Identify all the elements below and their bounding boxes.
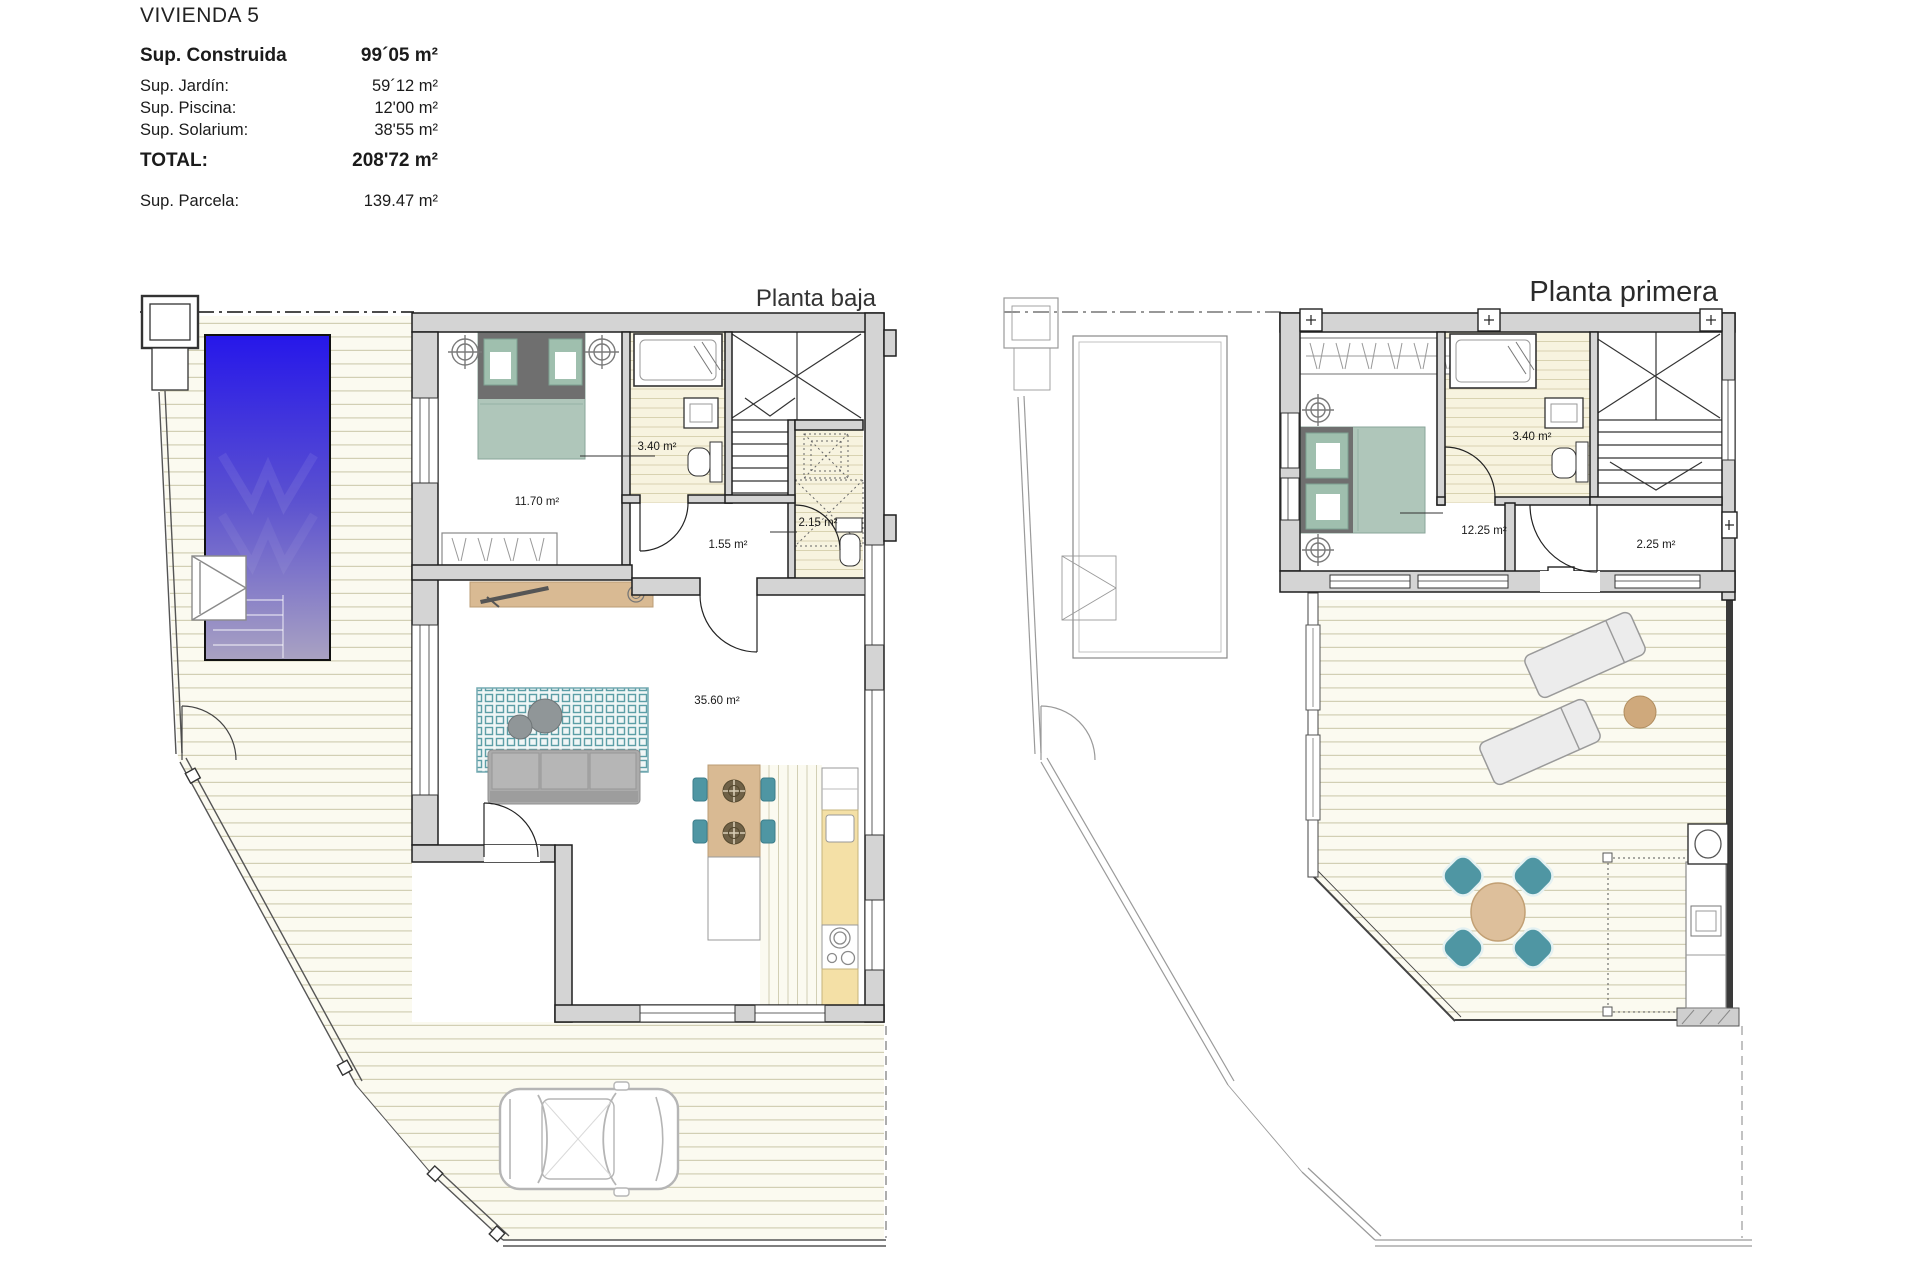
bedroom-area-label: 11.70 m² (515, 496, 560, 508)
shower (634, 334, 722, 386)
bathroom-sink (1545, 398, 1583, 428)
bathroom-sink (684, 398, 718, 428)
double-bed (478, 333, 585, 459)
parcel-boundary-bottom (503, 1240, 886, 1246)
solarium-end-wall (1677, 1008, 1739, 1026)
kitchen-counter (822, 768, 858, 1005)
sofa (488, 750, 640, 804)
planta-primera-plan: Planta primera (1004, 276, 1752, 1246)
tv-sideboard (470, 582, 653, 607)
hall-area-label: 2.25 m² (1637, 539, 1676, 551)
planta-baja-plan: Planta baja (140, 285, 896, 1246)
kitchen-island (708, 857, 760, 940)
dining-chair (693, 778, 707, 801)
bath-area-label: 3.40 m² (638, 441, 677, 453)
living-area-label: 35.60 m² (694, 695, 740, 707)
solarium-left-wall (1306, 593, 1320, 877)
side-table (1624, 696, 1656, 728)
coffee-table (528, 699, 562, 733)
hall-area-label: 1.55 m² (709, 539, 748, 551)
solarium-right-wall (1726, 600, 1733, 1022)
dining-chair (693, 820, 707, 843)
planta-baja-title: Planta baja (756, 285, 877, 312)
place-setting-icon (723, 780, 745, 802)
bedroom-area-label: 12.25 m² (1461, 525, 1507, 537)
bath-area-label: 3.40 m² (1513, 431, 1552, 443)
dining-chair (761, 820, 775, 843)
place-setting-icon (723, 822, 745, 844)
outdoor-shower-pad (192, 556, 246, 620)
planta-primera-title: Planta primera (1529, 276, 1718, 308)
car (500, 1082, 678, 1196)
coffee-table (508, 715, 532, 739)
dining-chair (761, 778, 775, 801)
wardrobe (442, 533, 557, 565)
kitchen-sink (826, 815, 854, 842)
outdoor-table (1471, 883, 1525, 941)
shower-pad-ghost (1062, 556, 1116, 620)
plan-sheet: VIVIENDA 5 Sup. Construida 99´05 m² Sup.… (0, 0, 1920, 1280)
shower (1450, 334, 1536, 388)
floorplan-drawing: Planta baja (0, 0, 1920, 1280)
wc-area-label: 2.15 m² (799, 517, 838, 529)
double-bed (1301, 427, 1425, 533)
terrace-door-opening (1540, 571, 1600, 592)
pool-ghost (1073, 336, 1227, 658)
